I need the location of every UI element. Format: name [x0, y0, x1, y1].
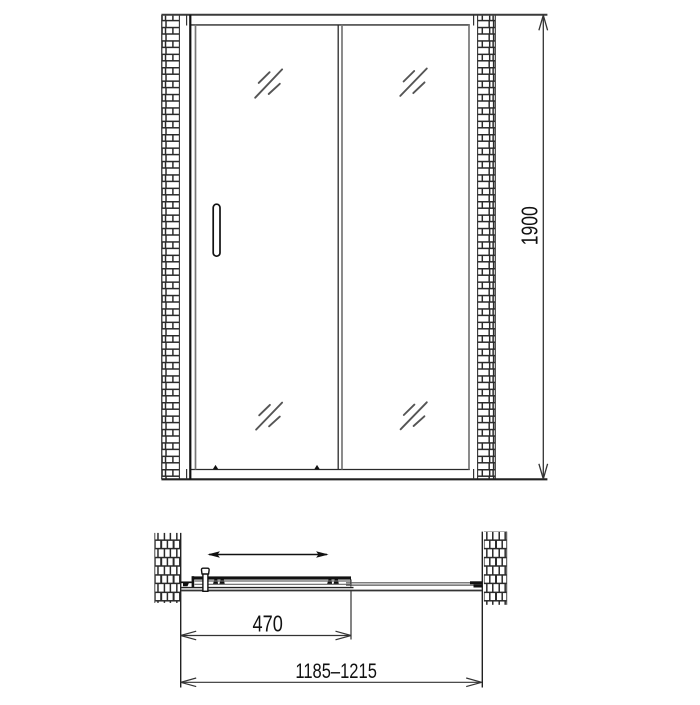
svg-text:470: 470 [253, 610, 283, 636]
svg-text:1185–1215: 1185–1215 [295, 659, 377, 683]
svg-text:1900: 1900 [517, 206, 543, 245]
